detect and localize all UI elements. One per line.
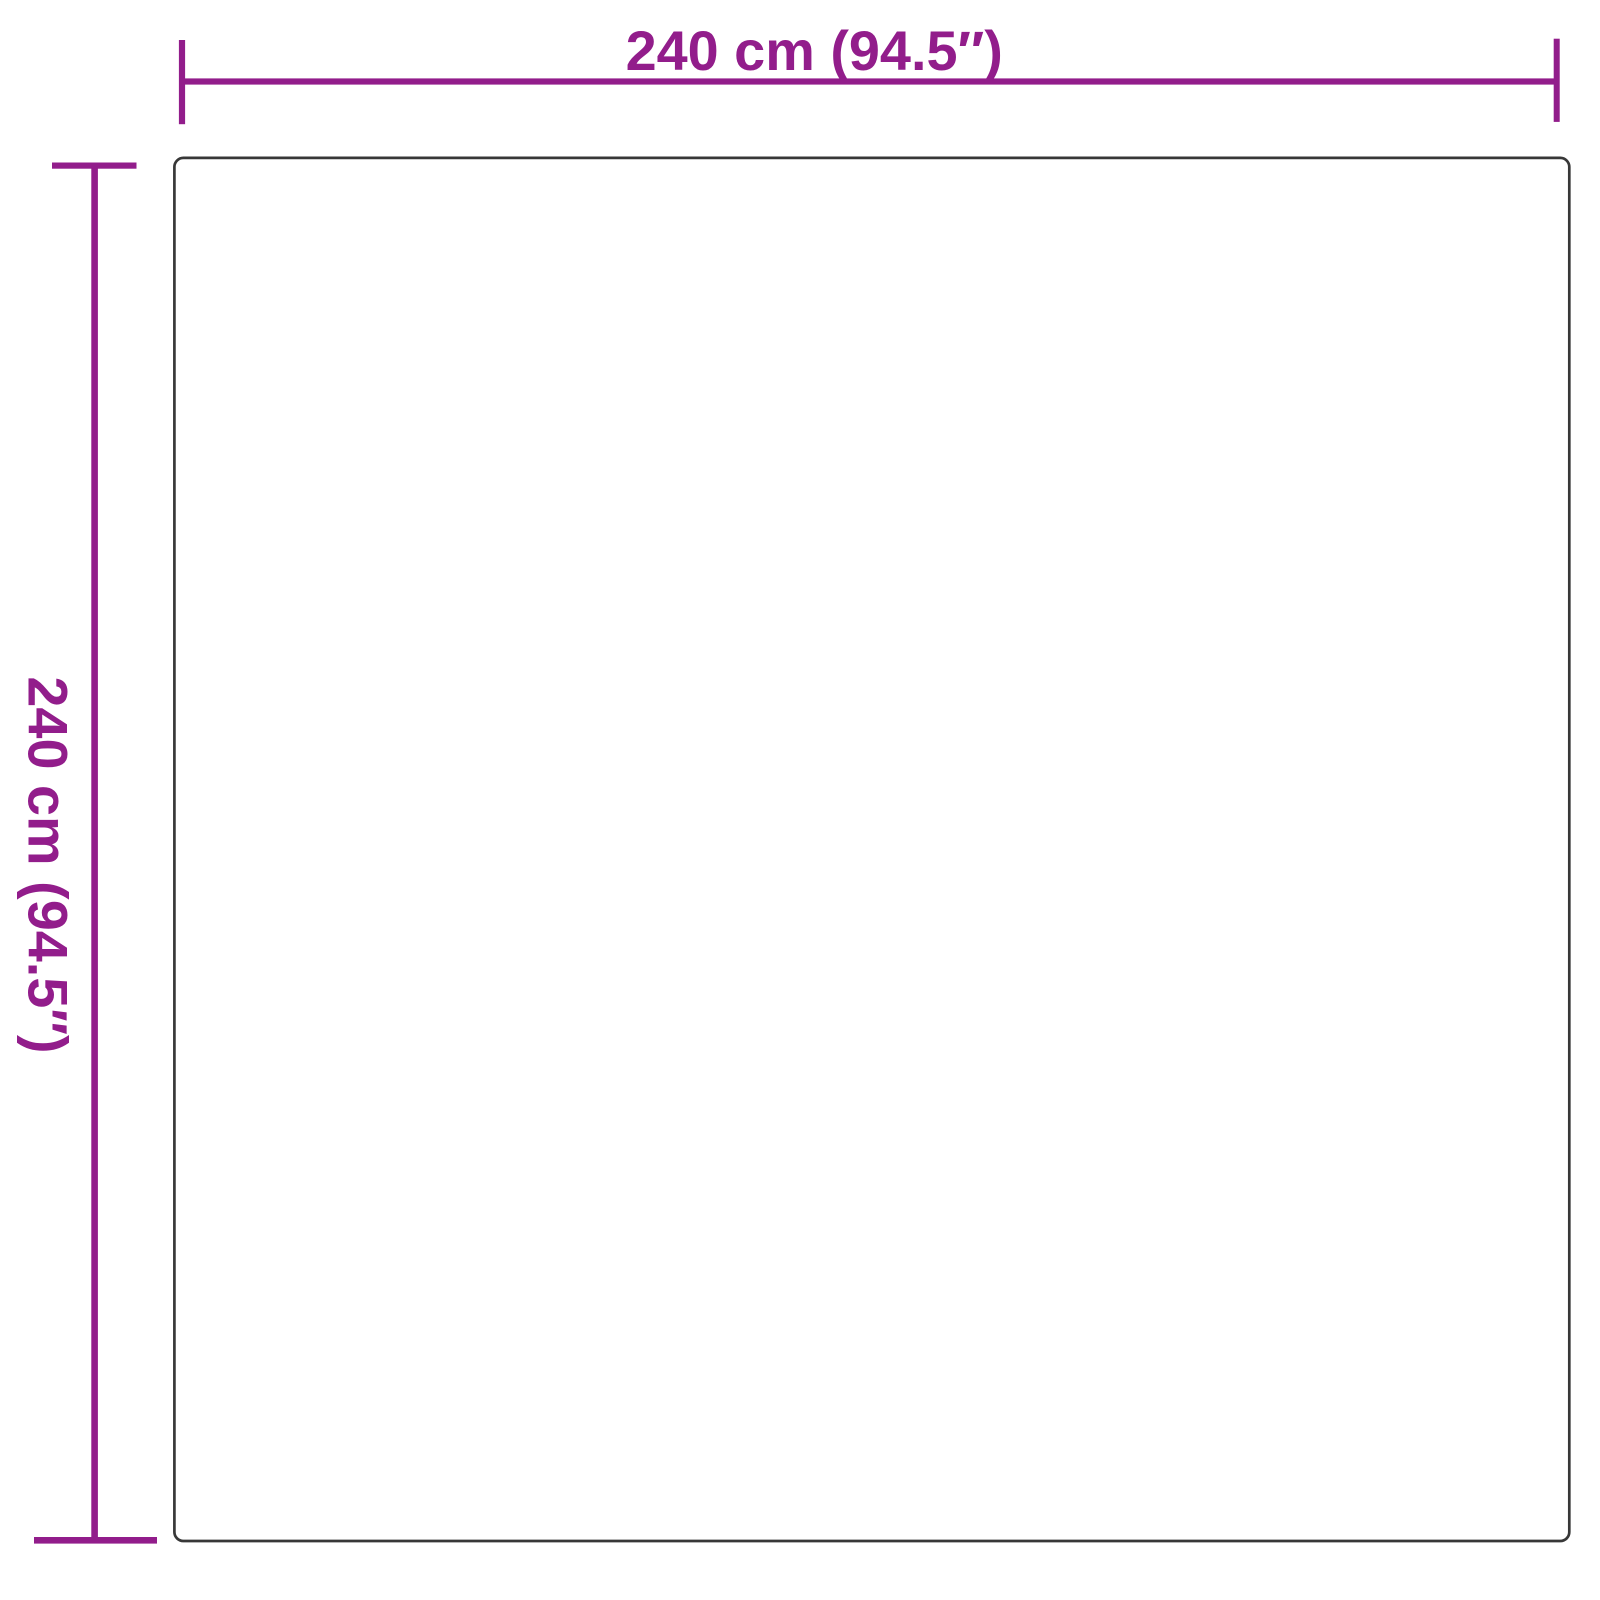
svg-text:240 cm (94.5″): 240 cm (94.5″) [16,676,79,1053]
svg-text:240 cm (94.5″): 240 cm (94.5″) [626,19,1003,82]
